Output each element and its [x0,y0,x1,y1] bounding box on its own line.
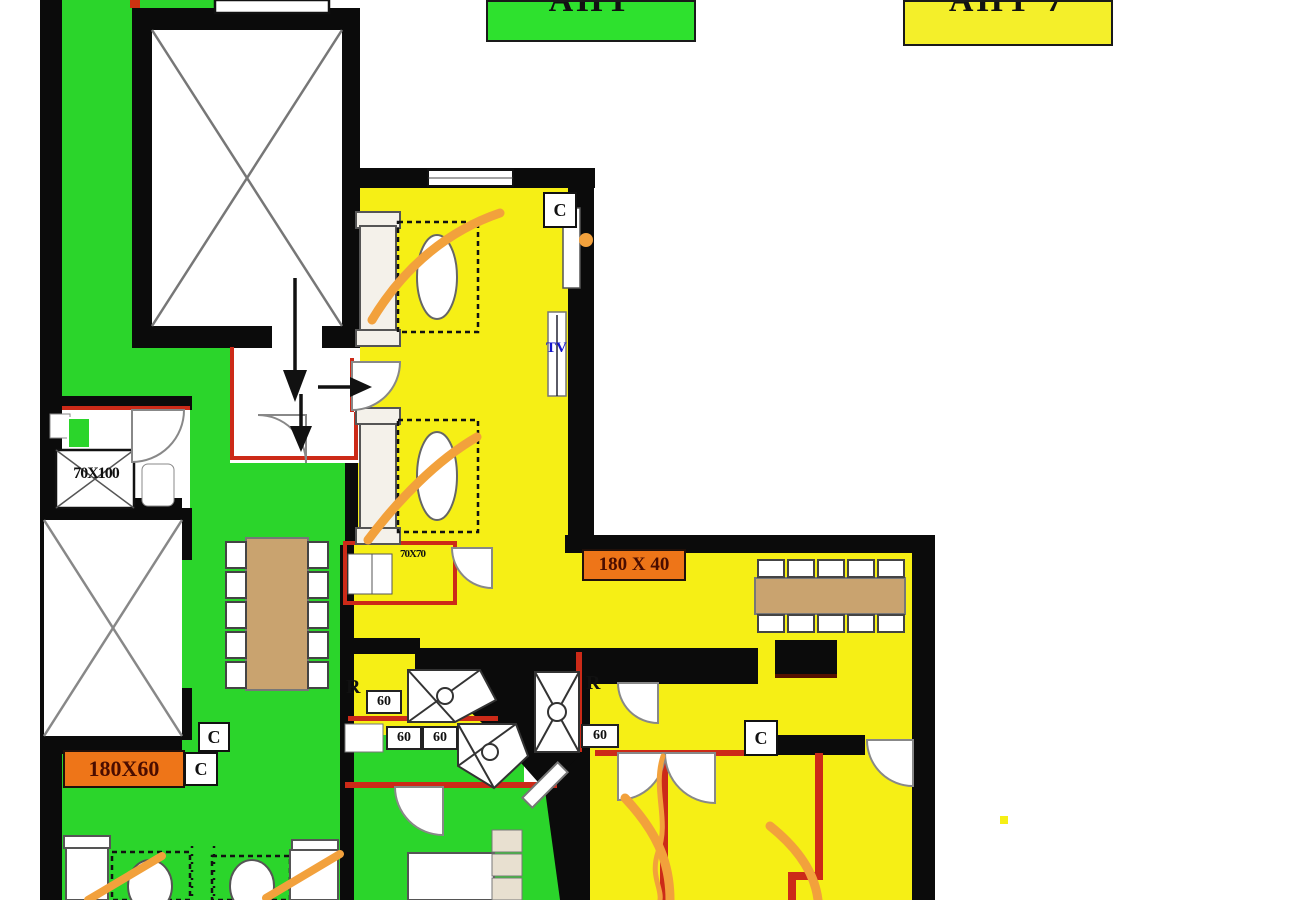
wall-bath-top-left [345,638,420,654]
shaft-door-gap [172,560,182,688]
dining-table-yellow [755,560,905,632]
green-fixture-a [68,418,90,448]
wall-right-outer [912,535,935,900]
yellow-speck [1000,816,1008,824]
room-dimension-label: 180X60 [63,750,185,788]
r-marker-1: R [346,676,360,699]
kitchen-dimension-label: 70X70 [400,548,425,560]
tv-unit [775,640,837,676]
red-tick [130,0,140,8]
bath-fixture [345,724,383,752]
nightstand-c [492,878,522,900]
sixty-marker-2: 60 [386,726,422,750]
hall-dimension-label: 180 X 40 [582,549,686,581]
closet-marker-2: C [198,722,230,752]
bathtub-dimension-label: 70X100 [60,465,132,483]
nightstand-a [492,830,522,852]
dining-table-green [226,538,328,690]
r-marker-2: R [586,672,600,695]
kitchen-counter-a [348,554,372,594]
shower-3 [535,672,579,752]
tv-unit-base [775,674,837,678]
nightstand-b [492,854,522,876]
orange-dot [579,233,593,247]
sixty-marker-1: 60 [366,690,402,714]
elevator-opening [272,326,322,350]
bed-1 [356,212,400,346]
closet-marker-1: C [543,192,577,228]
green-apartment-badge-text: АПТ [549,0,634,20]
kitchen-counter-b [372,554,392,594]
tv-label: TV [546,340,567,357]
red-line-bedroom-bottom [345,782,557,788]
bed-5 [408,853,494,900]
sixty-marker-4: 60 [581,724,619,748]
yellow-apartment-badge-text: АПТ 7 [949,0,1067,20]
floor-plan: АПТ АПТ 7 70X100 180 X 40 180X60 70X70 C… [0,0,1300,900]
wall-segment-c [775,735,865,755]
sixty-marker-3: 60 [422,726,458,750]
red-divider-2-tail [788,872,796,900]
top-door-leaf [215,0,329,13]
yellow-apartment-badge: АПТ 7 [903,0,1113,46]
green-apartment-badge: АПТ [486,0,696,42]
closet-marker-3: C [184,752,218,786]
toilet [142,464,174,506]
closet-marker-4: C [744,720,778,756]
red-divider-2 [815,753,823,878]
